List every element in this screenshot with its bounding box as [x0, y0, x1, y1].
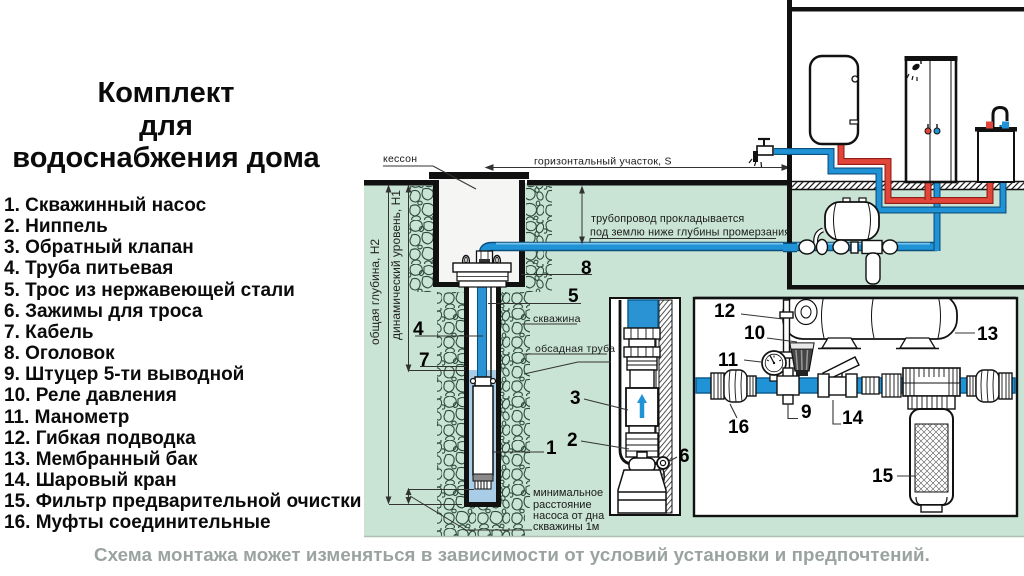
- svg-text:11: 11: [718, 350, 739, 371]
- svg-text:6: 6: [679, 446, 690, 467]
- svg-text:общая глубина, Н2: общая глубина, Н2: [368, 239, 382, 345]
- svg-text:12: 12: [714, 301, 735, 322]
- svg-text:динамический уровень, Н1: динамический уровень, Н1: [389, 190, 403, 340]
- svg-text:минимальное: минимальное: [533, 487, 603, 499]
- svg-text:15: 15: [872, 466, 894, 487]
- svg-text:9: 9: [801, 402, 812, 423]
- svg-text:под землю ниже глубины промерз: под землю ниже глубины промерзания: [590, 227, 790, 239]
- svg-text:7: 7: [419, 350, 430, 371]
- svg-text:14: 14: [842, 408, 864, 429]
- svg-text:1: 1: [546, 438, 557, 459]
- svg-text:обсадная труба: обсадная труба: [535, 343, 615, 355]
- svg-text:3: 3: [570, 388, 581, 409]
- svg-text:16: 16: [728, 417, 749, 438]
- svg-text:скважины 1м: скважины 1м: [533, 521, 599, 533]
- svg-text:4: 4: [413, 319, 424, 340]
- svg-text:2: 2: [567, 430, 578, 451]
- svg-text:10: 10: [744, 323, 765, 344]
- svg-text:кессон: кессон: [383, 153, 417, 165]
- svg-text:скважина: скважина: [533, 313, 581, 325]
- svg-text:горизонтальный участок, S: горизонтальный участок, S: [534, 156, 672, 168]
- svg-text:13: 13: [977, 324, 998, 345]
- svg-text:8: 8: [581, 258, 592, 279]
- svg-text:трубопровод прокладывается: трубопровод прокладывается: [591, 213, 744, 225]
- svg-text:5: 5: [568, 286, 579, 307]
